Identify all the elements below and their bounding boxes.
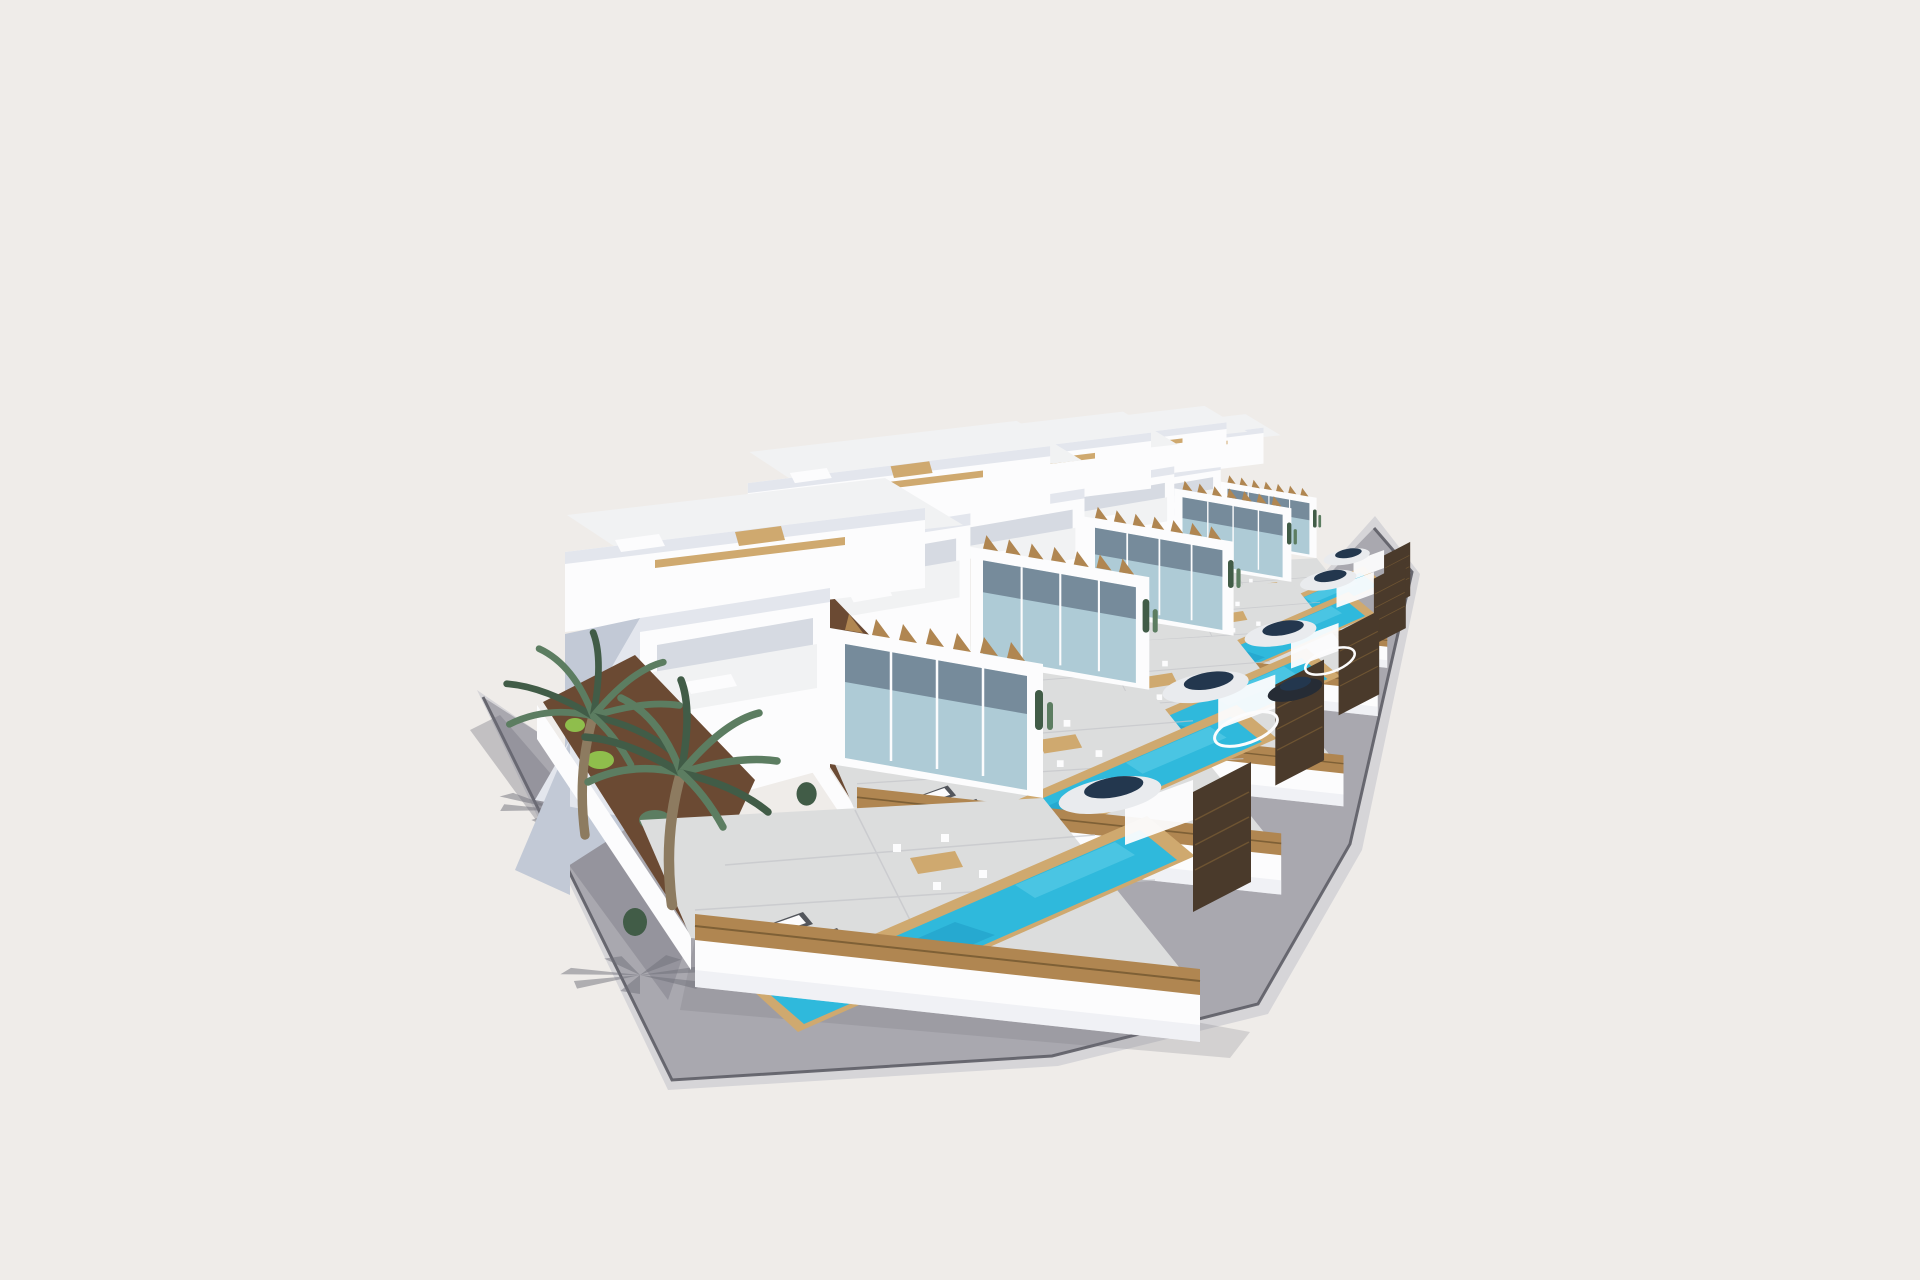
architectural-render: [0, 0, 1920, 1280]
render-canvas: [0, 0, 1920, 1280]
